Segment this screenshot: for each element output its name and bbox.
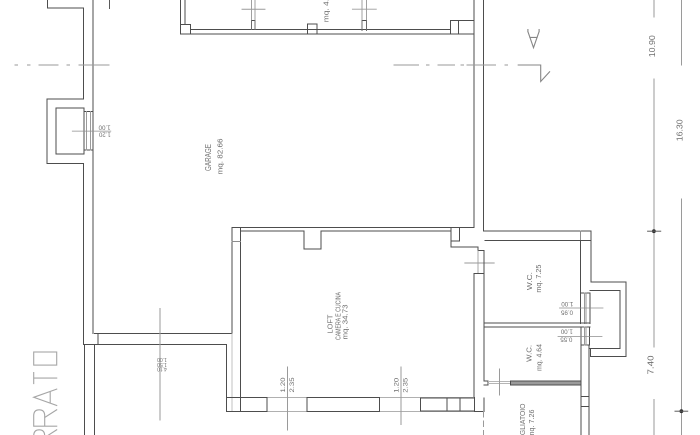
svg-text:1.20: 1.20 (394, 377, 401, 392)
svg-text:W.C.: W.C. (525, 272, 534, 290)
svg-text:mq. 7.25: mq. 7.25 (534, 265, 543, 293)
svg-text:7.40: 7.40 (647, 355, 656, 375)
svg-text:W.C.: W.C. (525, 345, 534, 362)
svg-text:1.00: 1.00 (98, 123, 111, 130)
svg-text:mq. 7.26: mq. 7.26 (527, 410, 536, 435)
svg-text:16.30: 16.30 (675, 119, 684, 142)
svg-text:1.20: 1.20 (98, 131, 111, 138)
svg-text:GARAGE: GARAGE (204, 144, 213, 171)
svg-text:0.95: 0.95 (560, 308, 573, 315)
svg-text:1.00: 1.00 (561, 300, 574, 307)
svg-text:mq. 34.73: mq. 34.73 (341, 305, 350, 340)
svg-text:2.35: 2.35 (403, 377, 410, 392)
svg-text:mq. 82.66: mq. 82.66 (216, 139, 225, 175)
svg-text:0.55: 0.55 (560, 336, 573, 343)
svg-text:4.10: 4.10 (157, 366, 167, 372)
svg-text:mq. 4.64: mq. 4.64 (535, 344, 544, 371)
svg-text:1.20: 1.20 (280, 377, 287, 392)
svg-text:SPOGLIATOIO: SPOGLIATOIO (518, 403, 527, 435)
svg-text:1.00: 1.00 (560, 328, 573, 335)
svg-text:2.35: 2.35 (289, 377, 296, 392)
svg-text:10.90: 10.90 (648, 35, 657, 58)
svg-text:mq. 4.1: mq. 4.1 (324, 0, 331, 22)
